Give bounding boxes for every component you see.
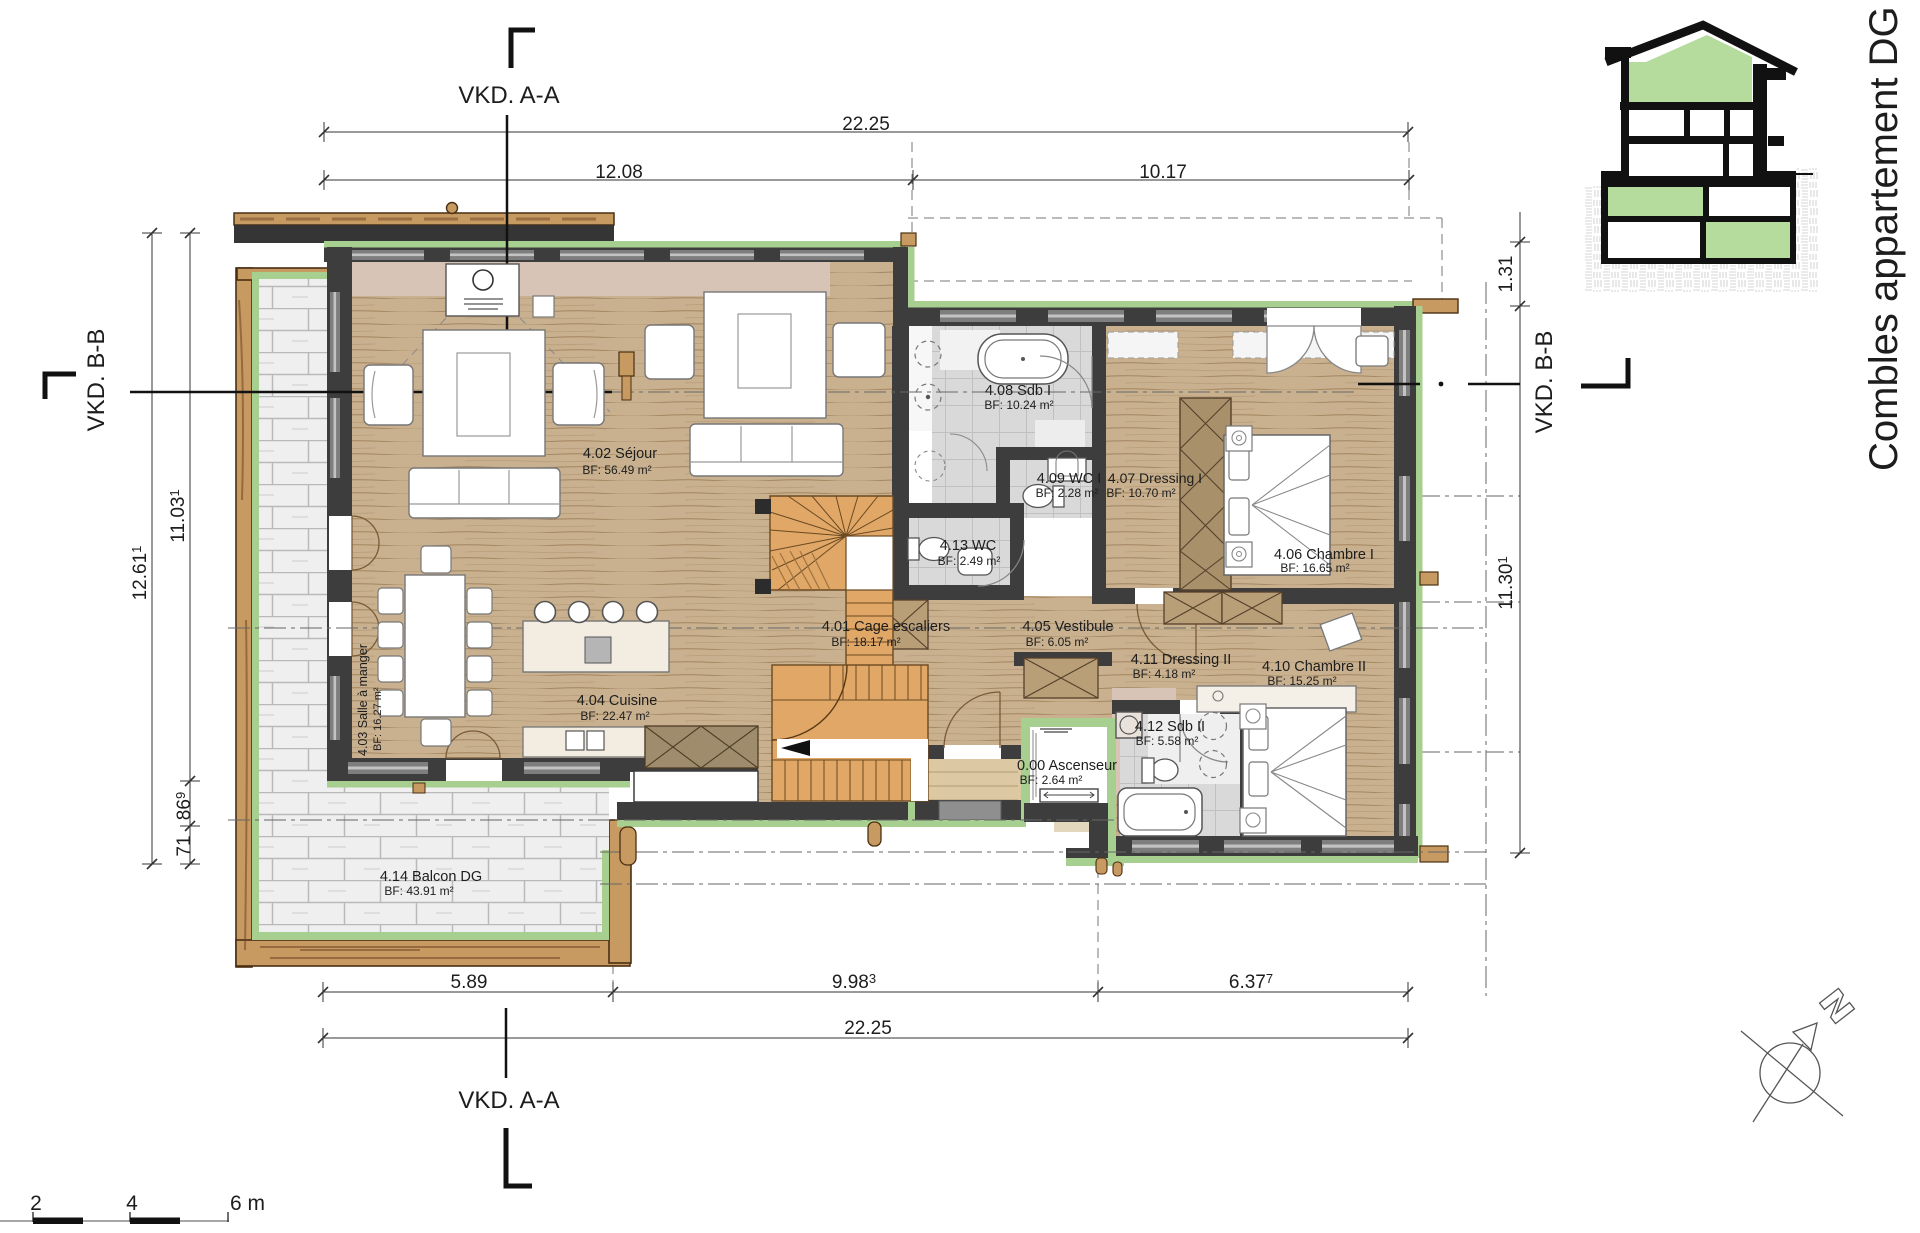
svg-text:11.031: 11.031 xyxy=(167,489,189,542)
svg-text:BF: 4.18 m²: BF: 4.18 m² xyxy=(1133,667,1196,681)
svg-text:4.03 Salle à manger: 4.03 Salle à manger xyxy=(356,644,370,756)
svg-text:BF: 56.49 m²: BF: 56.49 m² xyxy=(582,463,651,477)
svg-text:BF: 16.65 m²: BF: 16.65 m² xyxy=(1280,561,1349,575)
svg-text:0.00 Ascenseur: 0.00 Ascenseur xyxy=(1017,758,1117,774)
svg-text:BF: 22.47 m²: BF: 22.47 m² xyxy=(580,709,649,723)
svg-text:4.12 Sdb II: 4.12 Sdb II xyxy=(1135,719,1205,735)
svg-text:22.25: 22.25 xyxy=(842,114,890,135)
svg-text:BF: 5.58 m²: BF: 5.58 m² xyxy=(1136,734,1199,748)
svg-text:Combles appartement DG: Combles appartement DG xyxy=(1862,6,1906,471)
svg-text:BF: 43.91 m²: BF: 43.91 m² xyxy=(384,884,453,898)
svg-text:VKD. B-B: VKD. B-B xyxy=(83,329,110,432)
svg-text:4.08 Sdb I: 4.08 Sdb I xyxy=(985,383,1051,399)
svg-text:4.01 Cage escaliers: 4.01 Cage escaliers xyxy=(822,619,950,635)
svg-text:BF: 15.25 m²: BF: 15.25 m² xyxy=(1267,674,1336,688)
svg-text:2: 2 xyxy=(30,1192,42,1215)
svg-text:BF: 18.17 m²: BF: 18.17 m² xyxy=(831,635,900,649)
svg-text:4.02 Séjour: 4.02 Séjour xyxy=(583,446,657,462)
svg-text:BF: 10.70 m²: BF: 10.70 m² xyxy=(1106,486,1175,500)
svg-text:BF: 16.27 m²: BF: 16.27 m² xyxy=(372,687,384,751)
svg-text:BF: 10.24 m²: BF: 10.24 m² xyxy=(984,398,1053,412)
svg-text:4.09 WC I: 4.09 WC I xyxy=(1037,471,1101,487)
svg-text:VKD. B-B: VKD. B-B xyxy=(1531,331,1558,434)
svg-text:4.04 Cuisine: 4.04 Cuisine xyxy=(577,693,658,709)
svg-text:BF: 2.64 m²: BF: 2.64 m² xyxy=(1020,773,1083,787)
svg-text:4.11 Dressing II: 4.11 Dressing II xyxy=(1131,652,1231,668)
svg-text:5.89: 5.89 xyxy=(451,972,488,993)
svg-text:4.13 WC: 4.13 WC xyxy=(940,538,996,554)
svg-text:BF: 6.05 m²: BF: 6.05 m² xyxy=(1026,635,1089,649)
svg-text:12.611: 12.611 xyxy=(129,546,151,601)
svg-text:12.08: 12.08 xyxy=(595,162,643,183)
svg-text:10.17: 10.17 xyxy=(1139,162,1187,183)
svg-text:4.05 Vestibule: 4.05 Vestibule xyxy=(1022,619,1113,635)
svg-text:4.07 Dressing I: 4.07 Dressing I xyxy=(1108,470,1202,486)
svg-text:1.31: 1.31 xyxy=(1496,256,1517,293)
svg-text:BF: 2.49 m²: BF: 2.49 m² xyxy=(938,554,1001,568)
svg-text:71: 71 xyxy=(174,835,195,856)
svg-text:VKD. A-A: VKD. A-A xyxy=(458,82,559,109)
svg-text:6 m: 6 m xyxy=(230,1192,265,1215)
svg-text:VKD. A-A: VKD. A-A xyxy=(458,1087,559,1114)
svg-text:22.25: 22.25 xyxy=(844,1018,892,1039)
svg-text:11.301: 11.301 xyxy=(1495,556,1517,609)
svg-text:4: 4 xyxy=(126,1192,138,1215)
svg-text:BF: 2.28 m²: BF: 2.28 m² xyxy=(1036,486,1099,500)
svg-text:4.10 Chambre II: 4.10 Chambre II xyxy=(1262,659,1366,675)
svg-text:4.14 Balcon DG: 4.14 Balcon DG xyxy=(380,869,482,885)
